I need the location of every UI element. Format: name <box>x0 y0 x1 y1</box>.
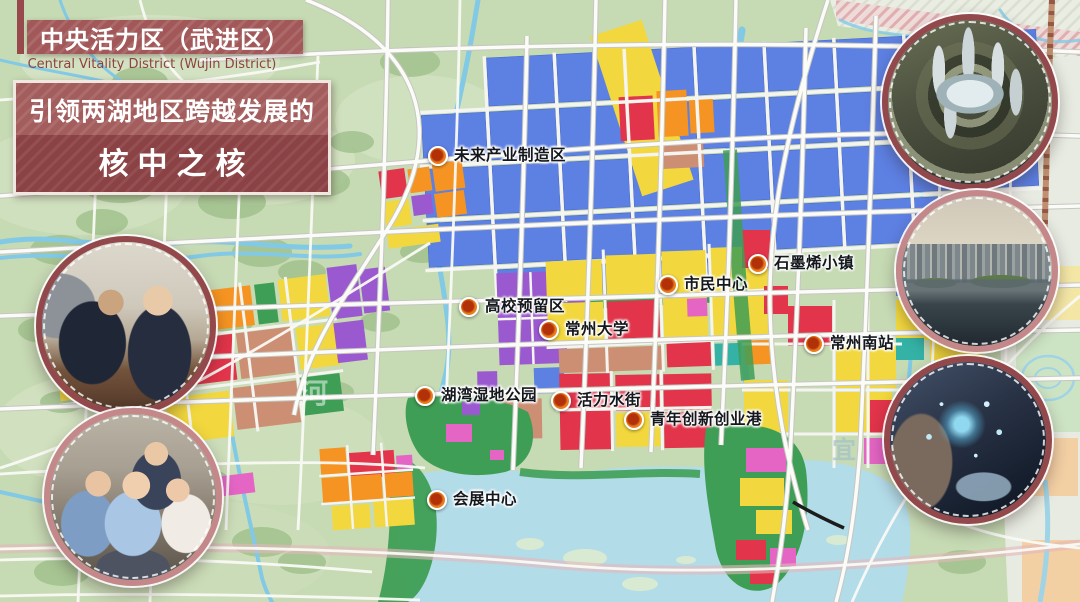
map-marker-lakebay-wetland-park: 湖湾湿地公园 <box>415 386 537 406</box>
map-marker-label: 活力水街 <box>577 393 641 409</box>
map-marker-future-industry-zone: 未来产业制造区 <box>428 146 566 166</box>
map-marker-changzhou-south-station: 常州南站 <box>804 334 894 354</box>
smart-tech-hands-photo <box>884 356 1052 524</box>
location-marker-icon <box>551 391 571 411</box>
team-celebration-photo <box>44 408 222 586</box>
map-marker-label: 未来产业制造区 <box>454 148 566 164</box>
location-marker-icon <box>748 254 768 274</box>
title-accent-bar <box>17 0 24 54</box>
map-marker-university-reserved-area: 高校预留区 <box>459 297 565 317</box>
slogan-banner: 引领两湖地区跨越发展的 核中之核 <box>13 80 331 195</box>
map-marker-label: 高校预留区 <box>485 299 565 315</box>
location-marker-icon <box>624 410 644 430</box>
map-marker-label: 石墨烯小镇 <box>774 256 854 272</box>
map-marker-label: 会展中心 <box>453 492 517 508</box>
map-marker-graphene-town: 石墨烯小镇 <box>748 254 854 274</box>
map-marker-label: 湖湾湿地公园 <box>441 388 537 404</box>
map-marker-label: 青年创新创业港 <box>650 412 762 428</box>
district-title: 中央活力区（武进区） <box>27 20 303 54</box>
map-marker-vitality-water-street: 活力水街 <box>551 391 641 411</box>
district-title-english: Central Vitality District (Wujin Distric… <box>27 57 277 72</box>
lakefront-skyline-photo <box>896 190 1058 352</box>
smart-tech-hands-photo-image <box>890 362 1046 518</box>
map-marker-changzhou-university: 常州大学 <box>539 320 629 340</box>
location-marker-icon <box>658 275 678 295</box>
poster-canvas: 河 宜 未来产业制造区 高校预留区 常州大学 市民中心 石墨烯小镇 常州南站 湖… <box>0 0 1080 602</box>
location-marker-icon <box>415 386 435 406</box>
location-marker-icon <box>539 320 559 340</box>
circular-complex-aerial-photo <box>882 14 1058 190</box>
team-celebration-photo-image <box>50 414 216 580</box>
map-marker-label: 常州大学 <box>565 322 629 338</box>
location-marker-icon <box>459 297 479 317</box>
business-meeting-photo <box>36 236 216 416</box>
lakefront-skyline-photo-image <box>902 196 1052 346</box>
map-marker-convention-center: 会展中心 <box>427 490 517 510</box>
location-marker-icon <box>427 490 447 510</box>
slogan-line-2: 核中之核 <box>16 135 328 192</box>
slogan-line-1: 引领两湖地区跨越发展的 <box>16 83 328 135</box>
location-marker-icon <box>804 334 824 354</box>
location-marker-icon <box>428 146 448 166</box>
map-marker-label: 常州南站 <box>830 336 894 352</box>
circular-complex-aerial-photo-image <box>888 20 1052 184</box>
map-marker-youth-innovation-port: 青年创新创业港 <box>624 410 762 430</box>
map-marker-civic-center: 市民中心 <box>658 275 748 295</box>
business-meeting-photo-image <box>42 242 210 410</box>
map-marker-label: 市民中心 <box>684 277 748 293</box>
